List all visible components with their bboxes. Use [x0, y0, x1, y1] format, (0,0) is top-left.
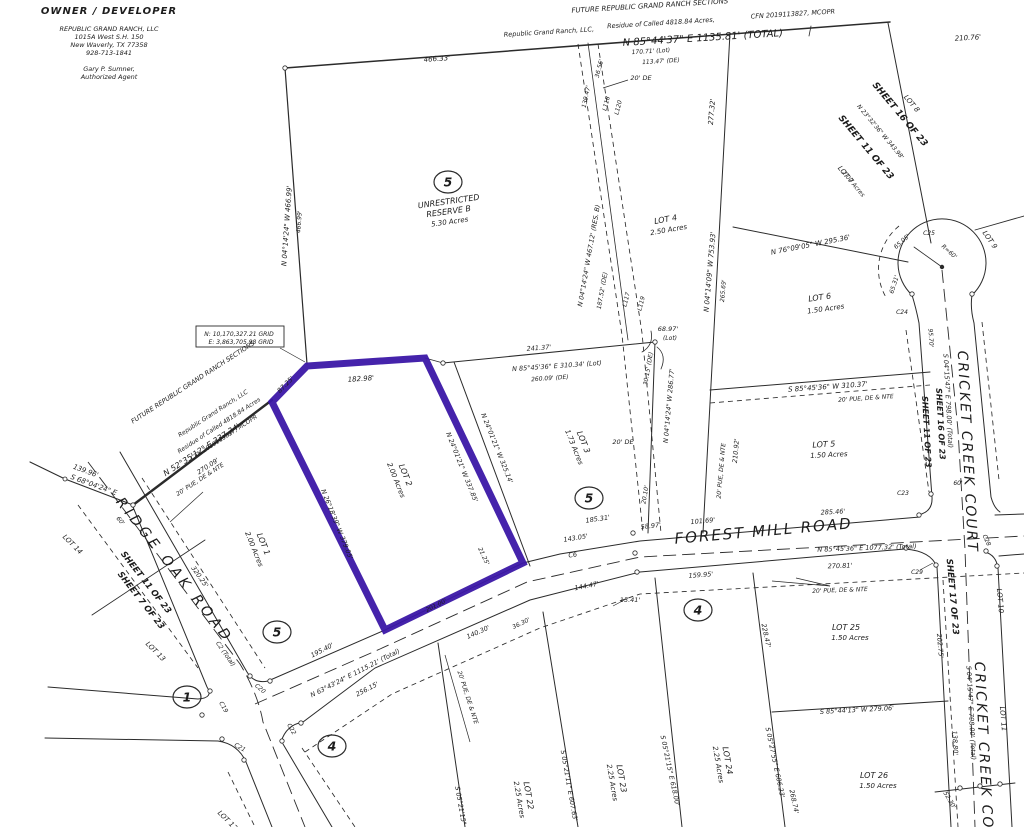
- map-label: 201.00': [425, 597, 449, 613]
- map-label: S 05°21'15" E 618.00': [659, 735, 682, 807]
- map-label: 20' PUE, DE & NTE: [716, 443, 728, 499]
- map-label: N 04°14'24" W 286.77': [662, 368, 677, 443]
- map-label: S 05°21'11" E 607.63': [559, 750, 579, 822]
- section-number-circle: 4: [684, 599, 712, 621]
- map-label: LOT 11: [998, 706, 1008, 731]
- map-label: 241.37': [526, 343, 551, 353]
- map-label: 285.46': [820, 507, 845, 516]
- map-label: 182.98': [347, 374, 374, 384]
- map-label: 95.70': [927, 328, 935, 348]
- map-label: 139.47': [581, 85, 593, 109]
- map-label: 20' PUE, DE & NTE: [812, 586, 868, 595]
- map-label: C19: [217, 700, 229, 714]
- map-label: 143.05': [563, 532, 589, 544]
- map-label: Republic Grand Ranch, LLC,: [503, 25, 594, 39]
- map-label: N: 10,170,327.21 GRID: [204, 331, 274, 338]
- map-label: 270.81': [828, 562, 853, 571]
- map-label: 144.47': [574, 580, 600, 593]
- map-label: N 85°45'36" E 310.34' (Lot): [512, 359, 602, 373]
- map-label: LOT 10: [995, 588, 1005, 614]
- map-label: 202.75': [935, 633, 945, 658]
- plat-svg: FUTURE REPUBLIC GRAND RANCH SECTIONSRepu…: [0, 0, 1024, 827]
- agent-line: Gary P. Sumner,: [14, 65, 204, 73]
- map-label: C6: [568, 550, 578, 559]
- owner-line: New Waverly, TX 77358: [14, 41, 204, 49]
- map-label: 277.32': [707, 98, 717, 125]
- map-label: 187.52' (DE): [596, 272, 609, 310]
- map-label: 195.40': [309, 641, 335, 659]
- map-label: 466.99': [295, 210, 304, 233]
- map-label: 1.50 Acres: [810, 450, 848, 460]
- map-label: 20' PUE, DE & NTE: [455, 670, 479, 725]
- section-number-circle: 5: [434, 171, 462, 193]
- section-number-circle: 5: [263, 621, 291, 643]
- map-label: (Lot): [663, 335, 677, 342]
- map-label: 15.41': [620, 596, 641, 604]
- map-label: 159.95': [688, 570, 713, 580]
- map-label: 113.47' (DE): [642, 57, 680, 66]
- map-label: 65.31': [888, 274, 901, 294]
- map-label: 20' DE: [630, 74, 652, 82]
- map-label: SHEET 11 OF 23: [920, 396, 933, 469]
- map-label: C23: [897, 490, 909, 497]
- map-label: Residue of Called 4818.84 Acres,: [607, 16, 715, 31]
- owner-line: 1015A West S.H. 150: [14, 33, 204, 41]
- map-label: L120: [613, 99, 624, 115]
- map-label: LOT 5: [812, 439, 835, 449]
- leader-lines: [170, 80, 933, 742]
- map-label: N 85°44'37" E 1135.81' (TOTAL): [622, 28, 783, 49]
- map-label: 36.30': [511, 616, 531, 631]
- map-label: 1.50 Acres: [859, 782, 897, 790]
- map-label: 210.92': [731, 438, 741, 463]
- owner-line: 928-713-1841: [14, 49, 204, 57]
- map-label: S 05°21'15" E: [453, 786, 469, 827]
- map-label: 21.25': [476, 546, 490, 566]
- map-label: LOT 25: [832, 623, 860, 632]
- svg-text:4: 4: [693, 603, 703, 618]
- map-label: S 05°27'55" E 606.23': [764, 727, 787, 799]
- map-label: 52.30': [942, 790, 958, 810]
- map-label: CRICKET CREEK COURT: [954, 350, 981, 553]
- svg-text:5: 5: [585, 491, 594, 506]
- map-label: L117: [621, 291, 632, 307]
- labels-layer: FUTURE REPUBLIC GRAND RANCH SECTIONSRepu…: [61, 0, 1008, 827]
- map-label: 268.74': [787, 789, 800, 815]
- section-number-circle: 5: [575, 487, 603, 509]
- map-label: N 26°18'39" W 379.05': [319, 488, 355, 561]
- road-lines: [45, 219, 1024, 827]
- map-label: 138.80': [950, 730, 959, 755]
- map-label: 65.05': [893, 233, 912, 251]
- map-label: R=60': [940, 243, 959, 261]
- map-label: LOT 14: [61, 533, 84, 556]
- map-label: 1.50 Acres: [807, 302, 845, 315]
- map-label: L119: [636, 295, 647, 311]
- map-label: LOT 12: [216, 809, 239, 827]
- owner-heading: OWNER / DEVELOPER: [14, 6, 204, 19]
- map-label: 20' PUE, DE & NTE: [838, 393, 894, 404]
- map-label: 140.30': [465, 623, 491, 640]
- plat-drawing: FUTURE REPUBLIC GRAND RANCH SECTIONSRepu…: [0, 0, 1024, 827]
- map-label: 60': [953, 480, 963, 487]
- svg-text:5: 5: [444, 175, 453, 190]
- map-label: 210.76': [954, 33, 981, 43]
- map-label: FUTURE REPUBLIC GRAND RANCH SECTIONS: [571, 0, 729, 15]
- map-label: C24: [896, 309, 908, 316]
- map-label: 256.15': [354, 680, 380, 698]
- map-label: 101.69': [690, 516, 715, 526]
- map-label: 58.97': [640, 521, 661, 531]
- map-label: CFN 2019113827, MCOPR: [751, 7, 836, 20]
- svg-text:1: 1: [183, 690, 192, 705]
- section-number-circle: 4: [318, 735, 346, 757]
- owner-line: REPUBLIC GRAND RANCH, LLC: [14, 25, 204, 33]
- map-label: N 04°14'24" W 466.99': [280, 185, 294, 266]
- map-label: 466.33': [423, 54, 450, 64]
- svg-text:5: 5: [273, 625, 282, 640]
- map-label: 2.00 Acres: [840, 170, 866, 199]
- map-label: N 24°01'21" W 325.14': [479, 412, 515, 485]
- map-label: 20' DE: [612, 438, 634, 446]
- map-label: 68.97': [658, 325, 679, 333]
- circled-numbers: 555144: [173, 171, 712, 757]
- map-label: L118: [601, 95, 612, 111]
- map-label: C20: [253, 682, 267, 695]
- owner-developer-block: OWNER / DEVELOPER REPUBLIC GRAND RANCH, …: [14, 6, 204, 81]
- map-label: 170.71' (Lot): [631, 47, 670, 56]
- map-label: S 85°44'13" W 279.06': [820, 704, 895, 716]
- map-label: C28: [981, 534, 992, 548]
- map-label: SHEET 16 OF 23: [870, 81, 930, 149]
- map-label: 36.56': [594, 58, 606, 78]
- map-label: 260.09' (DE): [531, 374, 569, 384]
- map-label: LOT 6: [808, 291, 832, 303]
- map-label: C25: [923, 230, 935, 237]
- map-label: SHEET 17 OF 23: [944, 558, 961, 635]
- corner-markers: [63, 66, 1002, 790]
- svg-text:4: 4: [327, 739, 337, 754]
- map-label: LOT 26: [860, 771, 888, 780]
- map-label: LOT 13: [144, 640, 167, 663]
- agent-line: Authorized Agent: [14, 73, 204, 81]
- map-label: 185.31': [585, 513, 611, 524]
- map-label: 1.50 Acres: [831, 634, 869, 642]
- map-label: E: 3,863,705.98 GRID: [209, 339, 274, 346]
- map-label: 265.69': [719, 279, 728, 303]
- map-label: 228.47': [759, 623, 772, 649]
- map-label: C29: [911, 569, 923, 576]
